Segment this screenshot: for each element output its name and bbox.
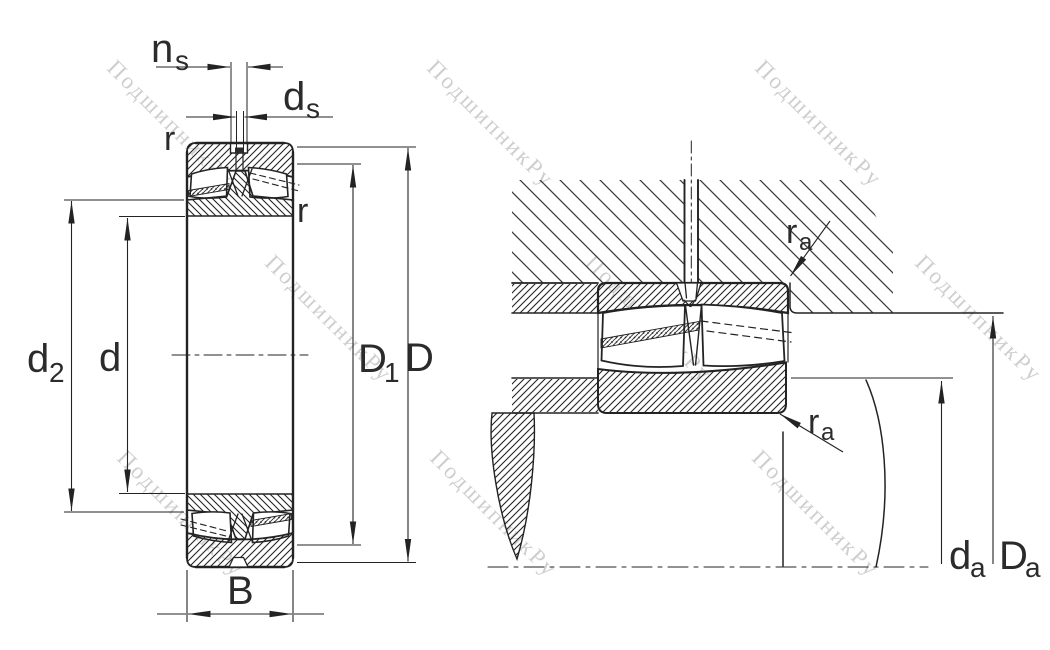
label-r-inner: r [297, 192, 308, 230]
label-D1: D [358, 337, 387, 381]
label-d: d [99, 336, 121, 380]
shaft-abutment-ring [512, 379, 598, 412]
label-ra-shaft: r [808, 403, 819, 441]
adjacent-part-contour [866, 380, 885, 567]
technical-drawing: n s d s r r d 2 d D 1 D B r a r a d a D … [0, 0, 1050, 650]
label-B: B [227, 569, 254, 613]
label-d2-sub: 2 [49, 357, 65, 388]
left-bearing-section [172, 143, 308, 567]
label-D: D [405, 336, 434, 380]
drawing-canvas: ПодшипникРу ПодшипникРу ПодшипникРу Подш… [0, 0, 1050, 650]
shaft-shoulder-section [491, 413, 534, 559]
label-D1-sub: 1 [384, 357, 400, 388]
label-ds: d [283, 75, 305, 119]
label-r-outer: r [164, 120, 175, 158]
label-ra-housing: r [786, 213, 797, 251]
guide-flange [686, 305, 702, 365]
right-mounting-section [488, 141, 1003, 567]
label-ns: n [151, 27, 173, 71]
housing-abutment-ring [512, 284, 598, 313]
label-ra-housing-sub: a [799, 229, 813, 256]
label-ra-shaft-sub: a [821, 419, 835, 446]
label-Da: D [999, 534, 1028, 578]
label-ds-sub: s [306, 93, 320, 124]
label-d2: d [27, 337, 49, 381]
label-da: d [949, 534, 971, 578]
inner-ring-section [598, 363, 786, 414]
label-ns-sub: s [175, 45, 189, 76]
label-Da-sub: a [1025, 552, 1041, 583]
label-da-sub: a [970, 552, 986, 583]
dimension-labels: n s d s r r d 2 d D 1 D B r a r a d a D … [27, 27, 1041, 613]
